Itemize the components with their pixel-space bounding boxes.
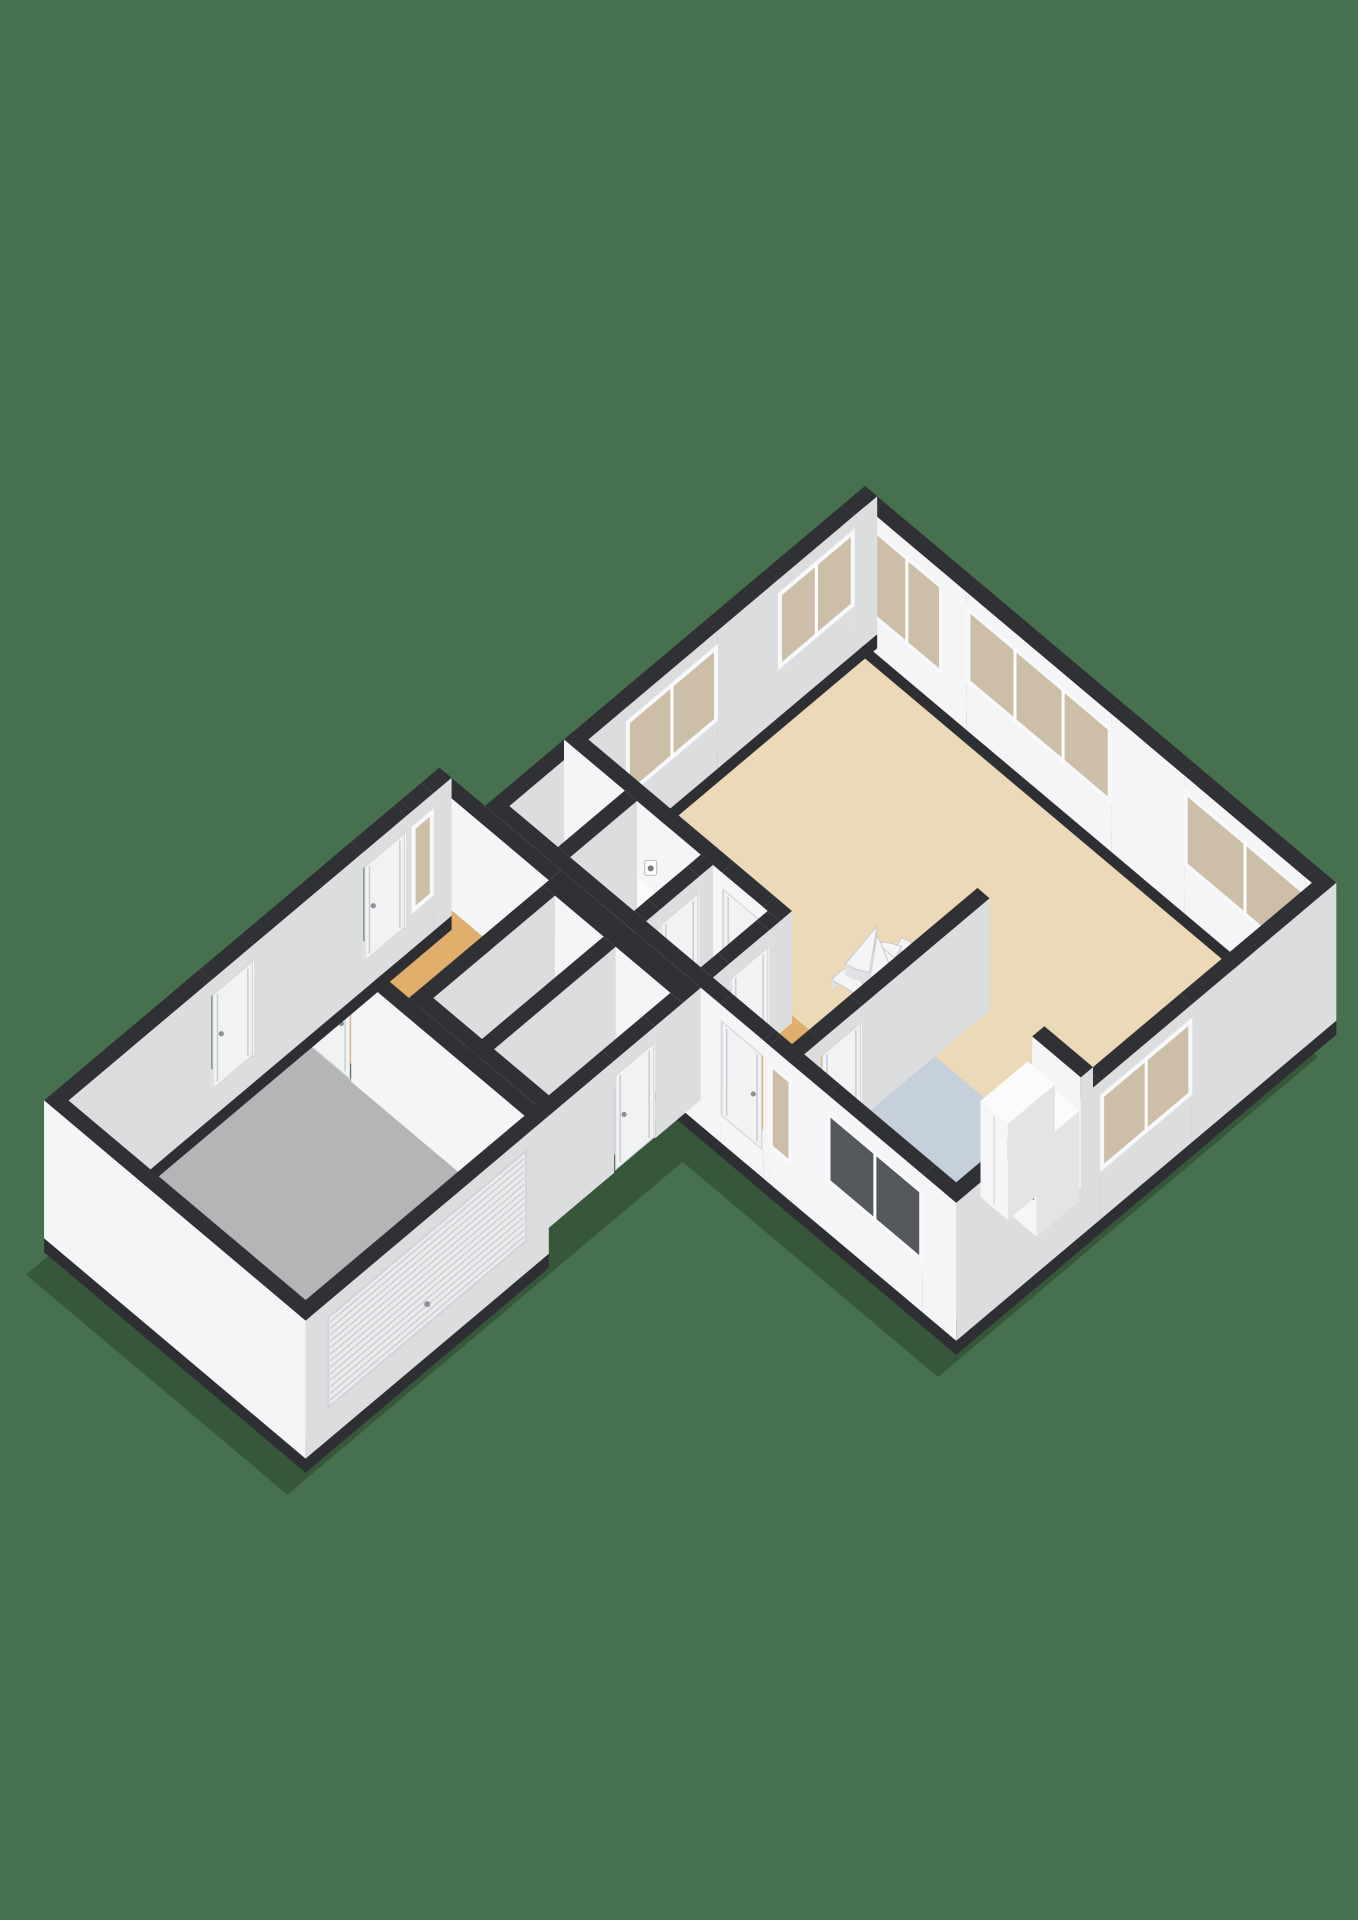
- floorplan-canvas: [0, 0, 1358, 1920]
- floorplan-3d-view: [0, 0, 1358, 1920]
